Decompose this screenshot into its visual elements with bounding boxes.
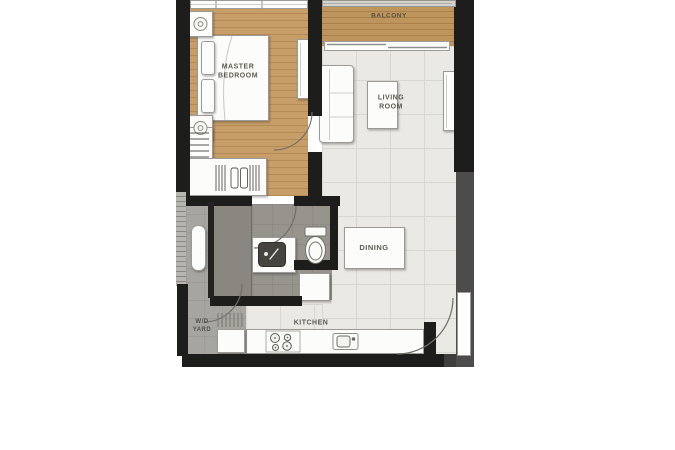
wall-bath-north-left <box>186 196 252 206</box>
wall-bottom <box>182 354 444 367</box>
wd-yard-label: W/D YARD <box>193 318 211 334</box>
vanity <box>252 237 296 273</box>
entry-door-leaf <box>457 292 471 356</box>
fridge <box>299 273 330 301</box>
wardrobe-shelves <box>187 127 213 160</box>
bedroom-window <box>190 0 308 9</box>
shower-floor <box>212 204 252 300</box>
balcony-sliding-door <box>324 41 450 51</box>
wall-bath-south-right <box>294 260 338 270</box>
kitchen-label: KITCHEN <box>294 318 329 327</box>
wall-left-upper <box>176 0 190 196</box>
wall-right-upper <box>454 0 474 172</box>
wall-bath-south-left <box>210 296 302 306</box>
louver-window <box>176 192 186 286</box>
nightstand <box>188 11 213 37</box>
balcony-label: BALCONY <box>371 13 407 22</box>
water-heater <box>191 225 206 271</box>
wall-corridor-divider <box>208 202 214 298</box>
floor-plan-canvas: MASTER BEDROOM BALCONY LIVING ROOM DININ… <box>0 0 675 450</box>
dining-label: DINING <box>359 243 388 253</box>
washer <box>217 329 245 353</box>
pillow <box>201 41 215 75</box>
wall-kitchen-end <box>424 322 436 354</box>
living-room-label: LIVING ROOM <box>378 94 404 113</box>
sofa <box>319 65 354 143</box>
master-bedroom-label: MASTER BEDROOM <box>218 63 258 82</box>
wall-bedroom-east-upper <box>308 0 322 116</box>
pillow <box>201 79 215 113</box>
wardrobe <box>187 158 267 196</box>
balcony-railing <box>322 0 456 7</box>
wall-left-lower <box>177 284 188 356</box>
kitchen-counter <box>246 329 424 354</box>
wall-bath-east <box>330 196 338 270</box>
